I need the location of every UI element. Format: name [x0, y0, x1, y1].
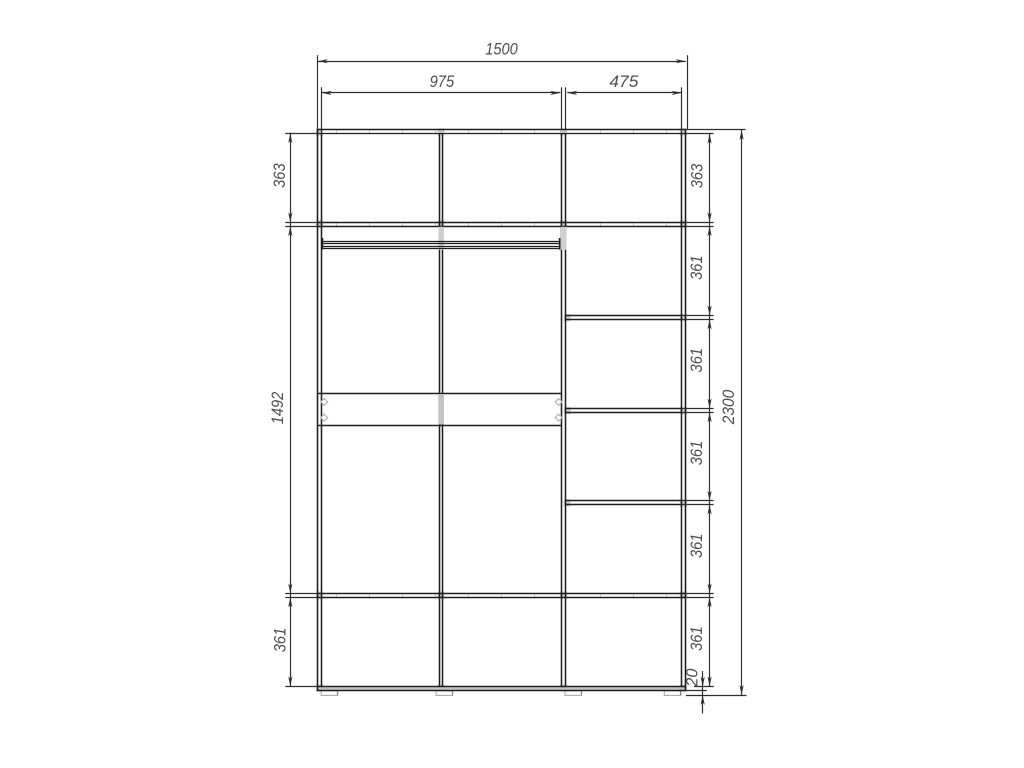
svg-text:475: 475: [609, 73, 639, 91]
svg-text:361: 361: [688, 441, 706, 466]
svg-text:1500: 1500: [485, 41, 518, 59]
svg-text:361: 361: [688, 626, 706, 651]
svg-text:1492: 1492: [269, 392, 287, 425]
svg-text:361: 361: [272, 628, 290, 653]
svg-text:20: 20: [683, 669, 701, 688]
svg-text:975: 975: [430, 73, 455, 91]
svg-text:363: 363: [271, 163, 289, 188]
svg-text:361: 361: [688, 255, 706, 280]
svg-text:363: 363: [689, 164, 707, 189]
svg-text:361: 361: [688, 534, 706, 559]
svg-text:2300: 2300: [720, 390, 738, 425]
svg-text:361: 361: [688, 348, 706, 373]
